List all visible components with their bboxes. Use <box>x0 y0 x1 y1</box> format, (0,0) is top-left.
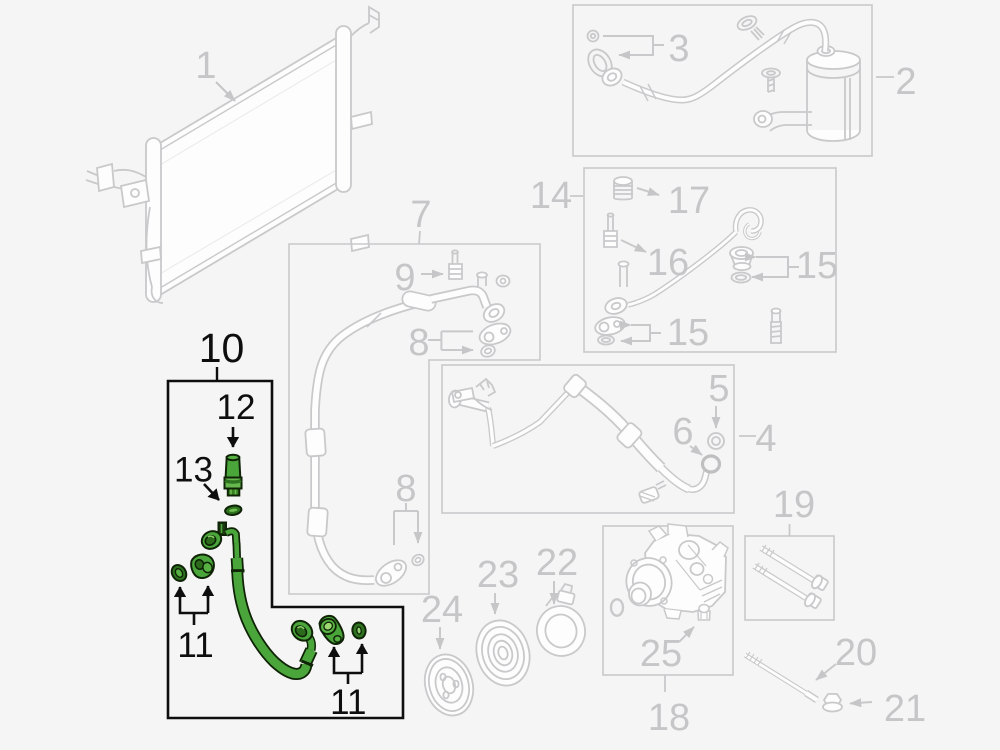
svg-text:16: 16 <box>647 242 689 284</box>
svg-text:17: 17 <box>668 180 710 222</box>
svg-text:4: 4 <box>755 418 776 460</box>
svg-text:20: 20 <box>835 632 877 674</box>
svg-text:3: 3 <box>668 28 689 70</box>
svg-text:21: 21 <box>884 688 926 730</box>
svg-text:9: 9 <box>394 257 415 299</box>
svg-text:6: 6 <box>672 411 693 453</box>
svg-text:23: 23 <box>477 554 519 596</box>
svg-text:15: 15 <box>667 312 709 354</box>
svg-text:11: 11 <box>330 683 366 722</box>
svg-text:5: 5 <box>708 368 729 410</box>
svg-text:13: 13 <box>174 451 213 490</box>
svg-text:10: 10 <box>199 325 245 371</box>
svg-text:11: 11 <box>177 626 213 665</box>
svg-text:24: 24 <box>421 589 463 631</box>
svg-text:18: 18 <box>648 697 690 739</box>
svg-text:22: 22 <box>536 542 578 584</box>
svg-text:7: 7 <box>410 194 431 236</box>
svg-text:14: 14 <box>530 175 572 217</box>
svg-text:25: 25 <box>640 633 682 675</box>
svg-text:15: 15 <box>796 245 838 287</box>
svg-text:2: 2 <box>895 61 916 103</box>
svg-text:8: 8 <box>395 468 416 510</box>
svg-text:8: 8 <box>408 322 429 364</box>
svg-text:1: 1 <box>195 45 216 87</box>
svg-text:12: 12 <box>217 388 256 427</box>
svg-text:19: 19 <box>773 484 815 526</box>
